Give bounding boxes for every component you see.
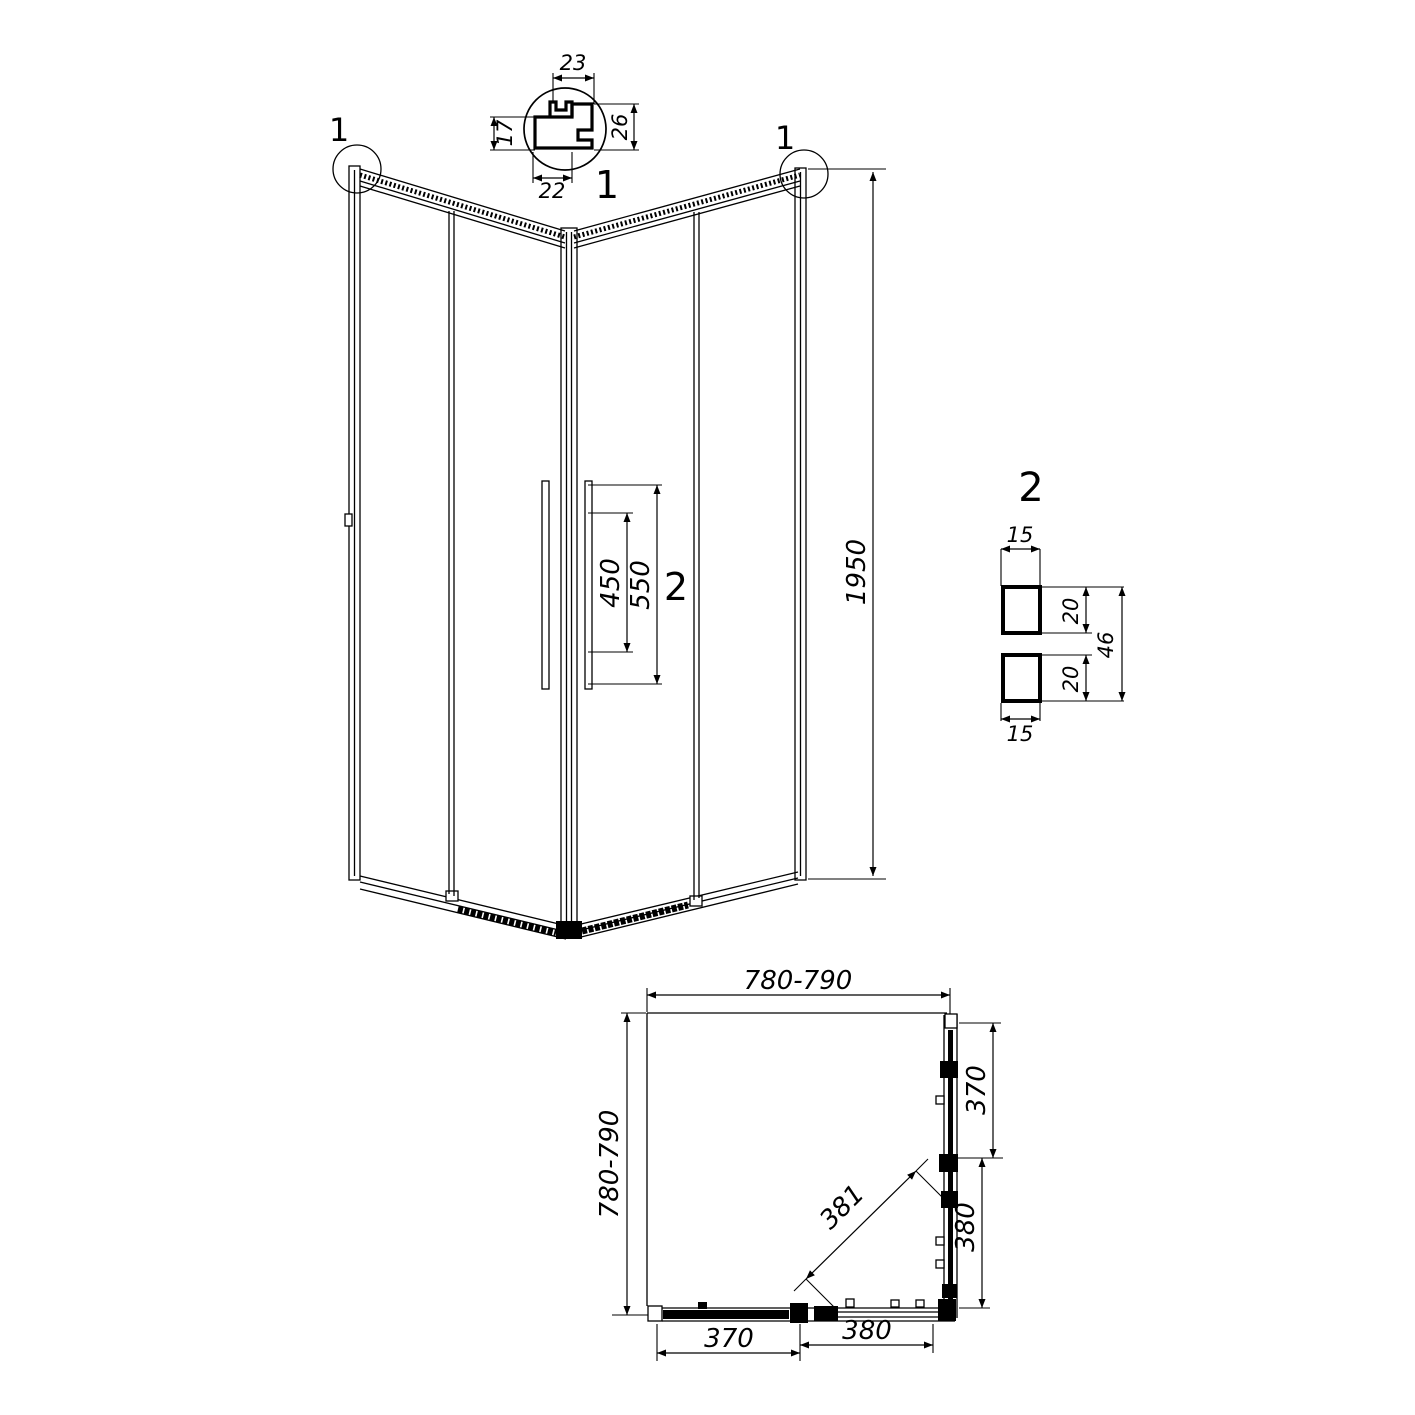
dim-23: 23 bbox=[560, 51, 587, 75]
top-rail-left bbox=[360, 169, 565, 248]
detail-2-handle-section: 2 15 20 20 46 15 bbox=[1001, 465, 1124, 746]
technical-drawing-page: 23 26 17 22 1 bbox=[0, 0, 1415, 1415]
plan-corner-block bbox=[938, 1299, 956, 1321]
detail-1-profile-section: 23 26 17 22 1 bbox=[490, 51, 639, 207]
dim-bottom-380: 380 bbox=[842, 1316, 892, 1346]
dim-20-bottom: 20 bbox=[1059, 666, 1083, 693]
dim-26: 26 bbox=[608, 114, 632, 141]
dim-width-top: 780-790 bbox=[744, 966, 853, 996]
dim-bottom-370: 370 bbox=[704, 1324, 754, 1354]
dim-depth-left: 780-790 bbox=[595, 1110, 625, 1219]
dim-diagonal-381: 381 bbox=[814, 1179, 870, 1235]
detail-2-label: 2 bbox=[1018, 465, 1043, 511]
profile-top-channel bbox=[550, 102, 572, 117]
callout-1-right: 1 bbox=[775, 119, 795, 157]
right-door-handle bbox=[585, 481, 592, 689]
plan-right-wall bbox=[936, 1014, 958, 1318]
elevation-view: 550 450 2 1950 1 1 bbox=[329, 111, 886, 939]
dim-550: 550 bbox=[626, 560, 656, 610]
shower-enclosure-drawing: 23 26 17 22 1 bbox=[0, 0, 1415, 1415]
corner-bottom-block bbox=[556, 921, 582, 939]
dim-right-380: 380 bbox=[951, 1202, 981, 1252]
plan-bottom-wall bbox=[648, 1299, 956, 1323]
handle-profile-top bbox=[1003, 587, 1040, 633]
dim-46: 46 bbox=[1094, 632, 1118, 659]
detail-1-label: 1 bbox=[595, 163, 619, 207]
corner-post bbox=[561, 228, 577, 936]
left-wall-bracket bbox=[345, 514, 352, 526]
dim-450: 450 bbox=[596, 558, 626, 608]
bottom-rail-right bbox=[577, 872, 798, 938]
handle-detail-label: 2 bbox=[664, 565, 688, 609]
dim-22: 22 bbox=[539, 179, 566, 203]
callout-1-left: 1 bbox=[329, 111, 349, 149]
dim-17: 17 bbox=[493, 119, 517, 146]
handle-profile-bottom bbox=[1003, 655, 1040, 701]
left-door-handle bbox=[542, 481, 549, 689]
dim-20-top: 20 bbox=[1059, 598, 1083, 625]
dim-15-top: 15 bbox=[1007, 523, 1034, 547]
dim-right-370: 370 bbox=[962, 1065, 992, 1115]
dim-15-bottom: 15 bbox=[1007, 722, 1034, 746]
bottom-rail-left bbox=[360, 876, 582, 939]
plan-view: 780-790 780-790 370 380 370 380 381 bbox=[595, 966, 1003, 1361]
dim-1950: 1950 bbox=[842, 539, 872, 605]
